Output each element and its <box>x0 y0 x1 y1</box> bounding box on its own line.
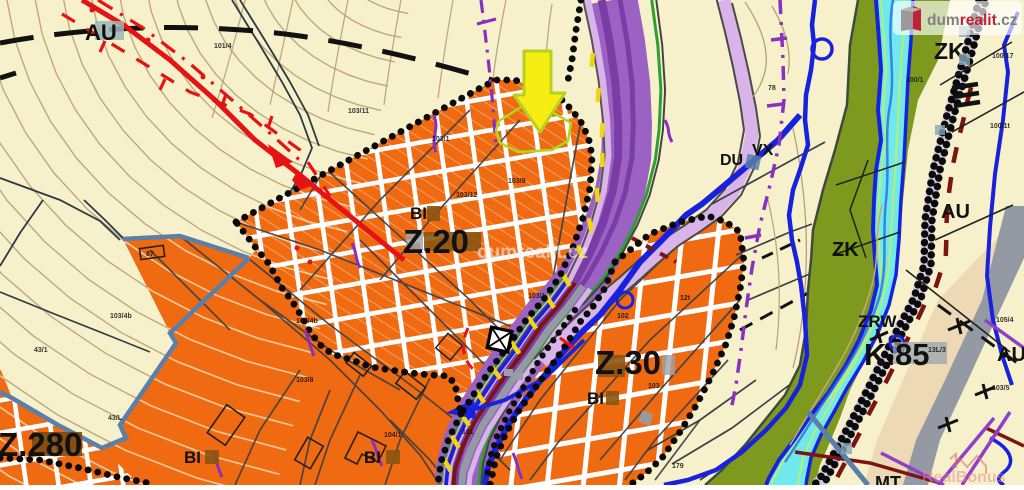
svg-text:103/11: 103/11 <box>348 108 369 115</box>
svg-text:Z.20: Z.20 <box>403 223 469 260</box>
svg-text:13L/3: 13L/3 <box>928 347 946 354</box>
svg-text:43/1: 43/1 <box>34 347 48 354</box>
svg-text:103/9: 103/9 <box>508 178 526 185</box>
svg-text:105/4: 105/4 <box>996 317 1014 324</box>
svg-text:103/1: 103/1 <box>528 293 546 300</box>
svg-text:102: 102 <box>617 313 629 320</box>
svg-text:100/1: 100/1 <box>906 77 924 84</box>
svg-text:103/8: 103/8 <box>296 377 314 384</box>
svg-text:MT: MT <box>875 473 901 485</box>
svg-text:100/17: 100/17 <box>992 53 1014 60</box>
svg-text:103/5: 103/5 <box>992 385 1010 392</box>
svg-text:Z.30: Z.30 <box>595 344 661 381</box>
svg-text:103: 103 <box>648 383 660 390</box>
svg-text:AU: AU <box>941 201 970 223</box>
svg-text:BI: BI <box>410 204 427 223</box>
svg-text:101/4: 101/4 <box>214 43 232 50</box>
svg-text:BI: BI <box>587 389 604 408</box>
svg-text:179: 179 <box>672 463 684 470</box>
svg-text:AU: AU <box>997 344 1024 366</box>
svg-text:104/1: 104/1 <box>384 432 402 439</box>
svg-text:103/12: 103/12 <box>456 192 478 199</box>
svg-text:103/4b: 103/4b <box>110 313 132 320</box>
svg-text:87: 87 <box>146 251 154 258</box>
svg-text:dumrealit.cz: dumrealit.cz <box>927 12 1018 29</box>
svg-text:101: 101 <box>462 429 474 436</box>
svg-text:103/4b: 103/4b <box>296 318 318 325</box>
svg-text:12t: 12t <box>680 295 691 302</box>
svg-text:BI: BI <box>184 448 201 467</box>
svg-text:DU: DU <box>720 152 743 169</box>
svg-text:BI: BI <box>364 448 381 467</box>
svg-text:Z.280: Z.280 <box>0 426 82 463</box>
svg-text:ZRW: ZRW <box>858 312 897 331</box>
svg-text:100/1t: 100/1t <box>990 123 1011 130</box>
svg-text:dumrealit.cz: dumrealit.cz <box>477 242 588 263</box>
svg-text:78: 78 <box>768 85 776 92</box>
svg-text:AU: AU <box>85 20 117 45</box>
svg-text:43/L: 43/L <box>108 415 123 422</box>
svg-text:K.85: K.85 <box>864 337 929 372</box>
svg-text:ZK: ZK <box>832 239 859 261</box>
svg-text:103/1: 103/1 <box>432 136 450 143</box>
svg-text:RealBonus: RealBonus <box>922 469 1006 485</box>
